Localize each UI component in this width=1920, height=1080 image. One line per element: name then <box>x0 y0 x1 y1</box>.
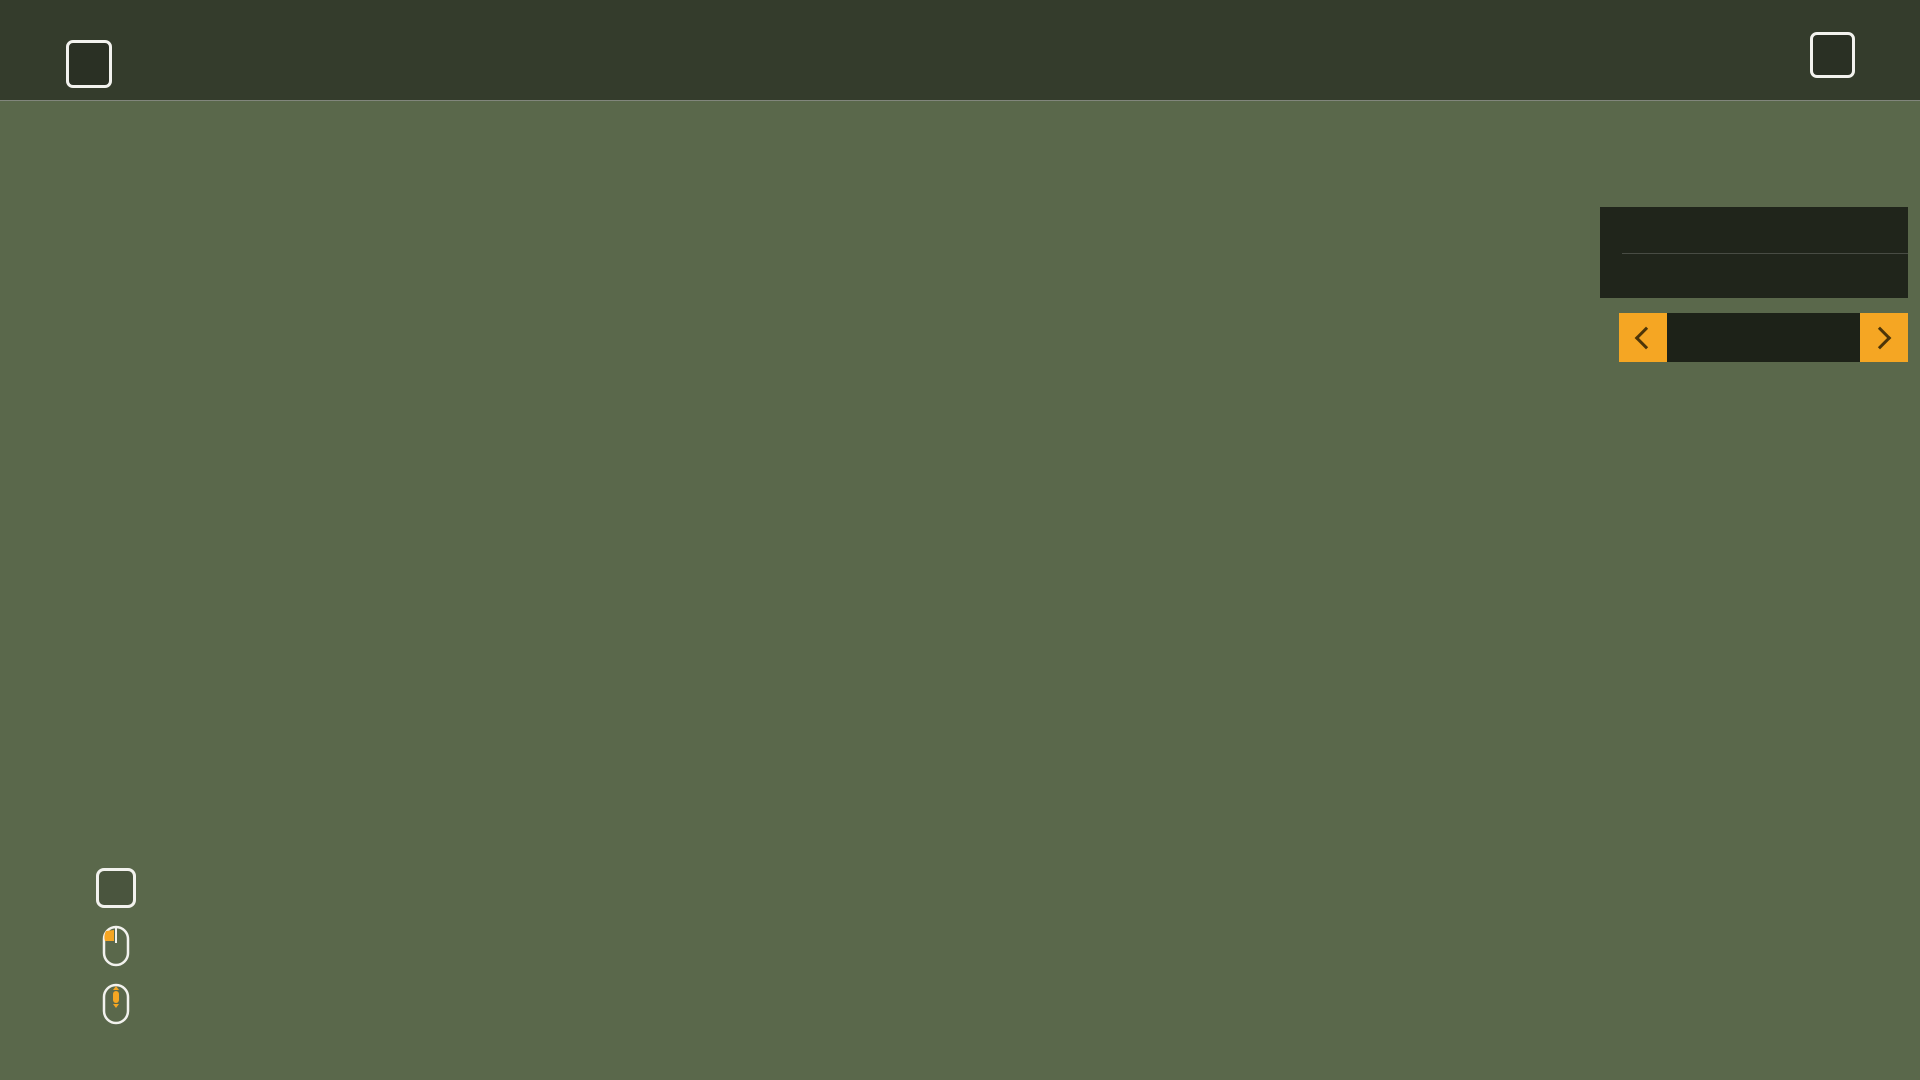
fruit-type-selector <box>1619 313 1908 362</box>
legend-zoom-map <box>96 982 152 1026</box>
prev-page-key-hint[interactable] <box>66 40 112 88</box>
next-filter-category-button[interactable] <box>1860 313 1908 362</box>
prev-filter-category-button[interactable] <box>1619 313 1667 362</box>
map-legend <box>96 866 152 1040</box>
chevron-left-icon <box>1635 327 1658 350</box>
legend-lands <box>96 866 152 910</box>
filter-panel <box>1600 207 1908 364</box>
next-page-key-hint[interactable] <box>1810 32 1855 78</box>
legend-rotate-map <box>96 924 152 968</box>
map-canvas[interactable] <box>0 0 1920 1080</box>
fruit-type-selector-label <box>1667 313 1860 362</box>
filter-panel-title <box>1600 207 1908 253</box>
filter-icon-row <box>1622 253 1908 298</box>
top-bar <box>0 0 1920 101</box>
mouse-scroll-icon <box>101 983 131 1025</box>
mouse-drag-icon <box>101 925 131 967</box>
key-hint-x <box>96 868 136 908</box>
filter-box <box>1600 207 1908 298</box>
chevron-right-icon <box>1869 327 1892 350</box>
game-screen <box>0 0 1920 1080</box>
